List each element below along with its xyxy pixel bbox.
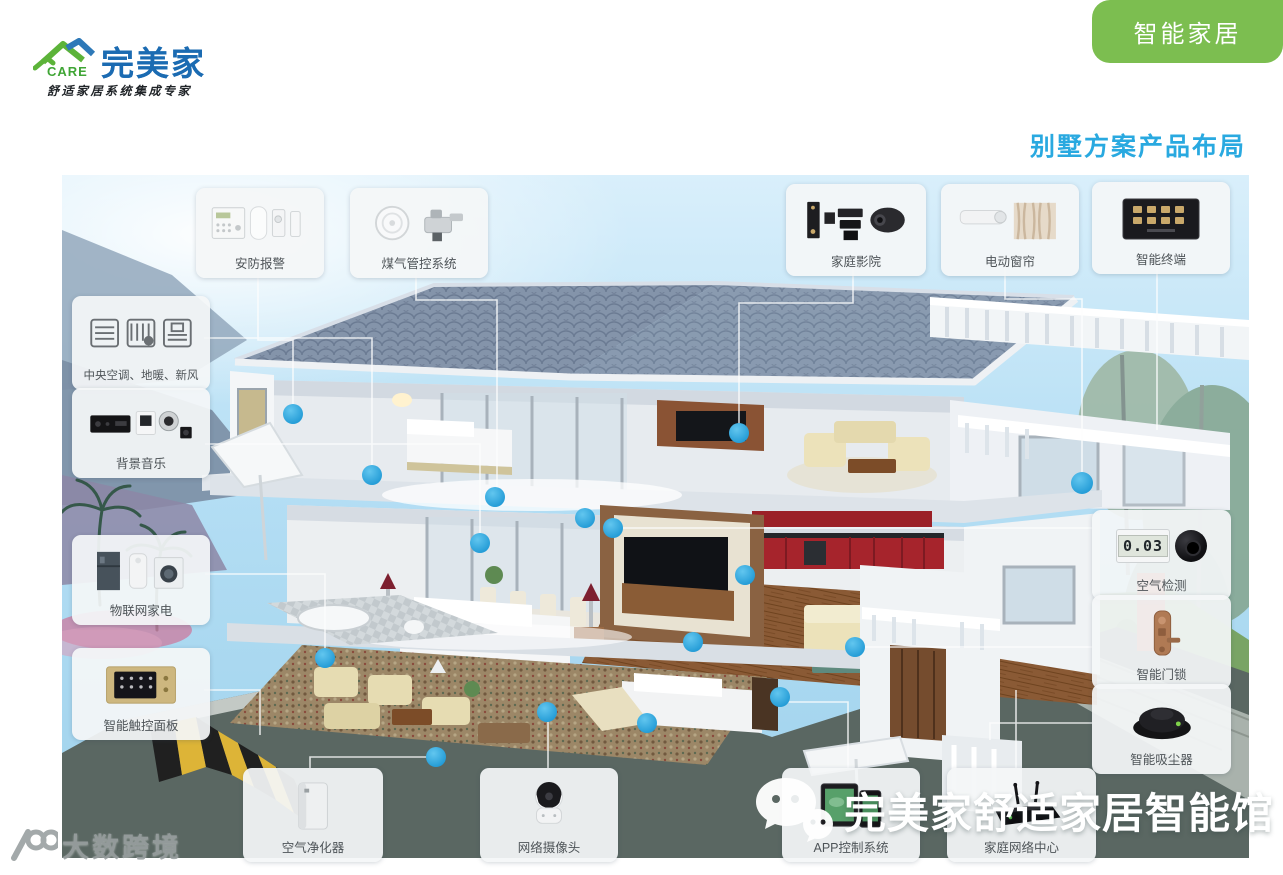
callout-label: 智能门锁 bbox=[1136, 666, 1186, 685]
callout-label: 网络摄像头 bbox=[518, 839, 581, 858]
smart-door-lock-products-image bbox=[1095, 600, 1228, 666]
callout-label: 煤气管控系统 bbox=[381, 255, 456, 274]
care-text: CARE bbox=[47, 64, 88, 79]
wechat-icon bbox=[752, 772, 836, 848]
callout-label: 智能终端 bbox=[1136, 251, 1186, 270]
hvac-products-image bbox=[75, 301, 207, 368]
touch-panel-products-image bbox=[75, 653, 207, 717]
robot-vacuum-products-image bbox=[1095, 689, 1228, 751]
callout-label: 中央空调、地暖、新风 bbox=[84, 368, 199, 386]
brand-tagline: 舒适家居系统集成专家 bbox=[47, 82, 273, 99]
callout-iot-appliances: 物联网家电 bbox=[72, 535, 210, 625]
ip-camera-products-image bbox=[483, 773, 615, 839]
callout-smart-door-lock: 智能门锁 bbox=[1092, 595, 1231, 689]
callout-label: 空气净化器 bbox=[282, 839, 345, 858]
air-detection-products-image: 0.03 bbox=[1095, 515, 1228, 577]
corner-badge-label: 智能家居 bbox=[1134, 14, 1242, 49]
callout-label: 电动窗帘 bbox=[985, 253, 1035, 272]
brand-name: 完美家 bbox=[101, 47, 206, 80]
callout-security-alarm: 安防报警 bbox=[196, 188, 324, 278]
callout-label: 空气检测 bbox=[1136, 577, 1186, 596]
callout-air-purifier: 空气净化器 bbox=[243, 768, 383, 862]
callout-hvac: 中央空调、地暖、新风 bbox=[72, 296, 210, 390]
callout-label: 物联网家电 bbox=[110, 602, 173, 621]
callout-smart-terminal: 智能终端 bbox=[1092, 182, 1230, 274]
air-monitor-display: 0.03 bbox=[1116, 529, 1170, 563]
callout-label: 智能触控面板 bbox=[103, 717, 178, 736]
electric-curtain-products-image bbox=[944, 189, 1076, 253]
callout-label: 家庭影院 bbox=[831, 253, 881, 272]
security-alarm-products-image bbox=[199, 193, 321, 255]
brand-logo: CARE 完美家 舒适家居系统集成专家 bbox=[33, 38, 273, 94]
smart-terminal-products-image bbox=[1095, 187, 1227, 251]
callout-robot-vacuum: 智能吸尘器 bbox=[1092, 684, 1231, 774]
callout-touch-panel: 智能触控面板 bbox=[72, 648, 210, 740]
callout-label: 安防报警 bbox=[235, 255, 285, 274]
callout-home-theater: 家庭影院 bbox=[786, 184, 926, 276]
callout-background-music: 背景音乐 bbox=[72, 388, 210, 478]
iot-appliances-products-image bbox=[75, 540, 207, 602]
page-title: 别墅方案产品布局 bbox=[1030, 127, 1246, 163]
air-sensor-camera bbox=[1175, 530, 1207, 562]
callout-ip-camera: 网络摄像头 bbox=[480, 768, 618, 862]
air-monitor-reading: 0.03 bbox=[1118, 535, 1168, 557]
corner-watermark-logo bbox=[6, 828, 58, 864]
corner-watermark-text: 大数跨境 bbox=[62, 826, 182, 865]
background-music-products-image bbox=[75, 393, 207, 455]
callout-label: 智能吸尘器 bbox=[1130, 751, 1193, 770]
corner-badge: 智能家居 bbox=[1092, 0, 1283, 63]
kitchen bbox=[738, 511, 944, 569]
house-roof-icon: CARE bbox=[33, 38, 97, 80]
callout-air-detection: 0.03 空气检测 bbox=[1092, 510, 1231, 600]
air-purifier-products-image bbox=[246, 773, 380, 839]
home-theater-products-image bbox=[789, 189, 923, 253]
corner-watermark: 大数跨境 bbox=[6, 826, 182, 865]
wechat-watermark: 完美家舒适家居智能馆 bbox=[752, 772, 1274, 848]
callout-gas-control: 煤气管控系统 bbox=[350, 188, 488, 278]
callout-electric-curtain: 电动窗帘 bbox=[941, 184, 1079, 276]
callout-label: 背景音乐 bbox=[116, 455, 166, 474]
gas-control-products-image bbox=[353, 193, 485, 255]
wechat-watermark-text: 完美家舒适家居智能馆 bbox=[844, 780, 1274, 841]
